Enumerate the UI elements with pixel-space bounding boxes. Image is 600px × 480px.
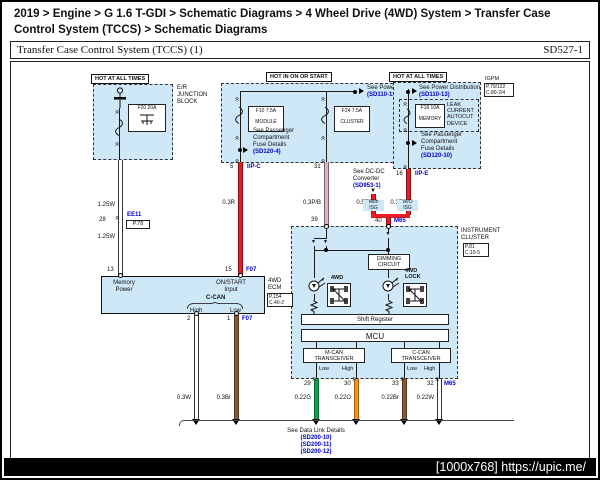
link-sd953-1[interactable]: (SD953-1) [353, 183, 385, 190]
link-sd120-10[interactable]: (SD120-10) [421, 153, 462, 160]
pin-2: 2 [187, 316, 190, 323]
see-passenger-fuse-details-4: See Passenger Compartment Fuse Details (… [253, 128, 294, 156]
drivetrain-4wd-icon [327, 283, 351, 307]
wire-label-03w: 0.3W [163, 395, 191, 402]
ecm-ccan-label: C-CAN [206, 295, 225, 302]
indicator-4wd-lock-label: 4WD LOCK [405, 268, 421, 280]
wire-orange-mcan-high [354, 379, 359, 419]
pin-15: 15 [225, 267, 232, 274]
diode-icon: ▼ [323, 240, 328, 245]
connector-link-ipc[interactable]: I/P-C [247, 164, 261, 171]
data-link-bus-line [179, 420, 514, 426]
wire-label-022br: 0.22Br [369, 395, 399, 402]
igpm-label: IGPM [485, 76, 499, 82]
mcan-high-label: High [342, 366, 353, 372]
pin-1: 1 [227, 316, 230, 323]
entry-circle [234, 311, 239, 316]
ccan-low-label: Low [407, 366, 417, 372]
ecm-name-label: 4WD ECM [268, 278, 281, 292]
relay-core-icon [137, 113, 157, 127]
see-data-link-details: See Data Link Details [251, 428, 381, 435]
see-reference-arrow [412, 88, 417, 94]
diagram-title-bar: Transfer Case Control System (TCCS) (1) … [10, 41, 590, 59]
wire-label-022w: 0.22W [405, 395, 434, 402]
connector-chevron-icon: « [350, 377, 358, 381]
wire-label-03br: 0.3Br [203, 395, 231, 402]
wire-white-ccan-high [437, 379, 442, 419]
fuse-box-f24: F24 7.5A CLUSTER [334, 106, 370, 132]
ecm-ref-box: P.154 C.40-2 [267, 293, 293, 307]
connector-chevron-icon: « [113, 142, 121, 146]
junction-dot [353, 90, 357, 94]
connector-chevron-icon: « [319, 136, 327, 140]
dimming-circuit-box: DIMMING CIRCUIT [368, 254, 410, 270]
resistor-icon [310, 300, 318, 314]
junction-dot [406, 141, 410, 145]
watermark-text: [1000x768] https://upic.me/ [436, 460, 586, 474]
connector-chevron-icon: « [113, 216, 121, 220]
diode-icon: ▼ [386, 232, 391, 237]
connector-chevron-icon: « [319, 159, 327, 163]
wire-brown-ccan-low-ecm [234, 315, 239, 419]
indicator-lamp-icon [307, 276, 327, 294]
wo-isg-tag: W/O ISG [397, 200, 418, 211]
schematic-diagram: HOT AT ALL TIMES E/R JUNCTION BLOCK « F2… [10, 61, 590, 461]
hot-label-right: HOT AT ALL TIMES [389, 72, 447, 82]
hot-label-mid: HOT IN ON OR START [266, 72, 332, 82]
pin-28: 28 [99, 217, 106, 224]
see-power-distribution-13: See Power Distribution [419, 85, 480, 92]
pin-30: 30 [344, 381, 351, 388]
connector-chevron-icon: « [398, 377, 406, 381]
fuse1-wire [240, 91, 241, 163]
connector-chevron-icon: « [433, 377, 441, 381]
ecm-memory-power-label: Memory Power [109, 280, 139, 294]
wire-label-022o: 0.22O [323, 395, 351, 402]
pin-33: 33 [392, 381, 399, 388]
wire-label-03r-left: 0.3R [209, 200, 235, 207]
shift-register-bar: Shift Register [301, 314, 449, 325]
connector-link-f07-top[interactable]: F07 [246, 267, 256, 274]
fuse-box-f18: F18 10A MEMORY [415, 104, 445, 128]
connector-link-m65-top[interactable]: M65 [394, 218, 406, 225]
mcu-bar: MCU [301, 329, 449, 342]
indicator-4wd-label: 4WD [331, 275, 343, 281]
drivetrain-4wd-lock-icon [403, 283, 427, 307]
link-sd200-12[interactable]: (SD200-12) [251, 449, 381, 456]
pin-32: 32 [427, 381, 434, 388]
cluster-wire [388, 238, 389, 254]
connector-chevron-icon: « [401, 102, 409, 106]
er-junction-block-label: E/R JUNCTION BLOCK [177, 85, 207, 106]
connector-chevron-icon: « [233, 159, 241, 163]
connector-chevron-icon: « [113, 110, 121, 114]
pin-29: 29 [304, 381, 311, 388]
schematic-viewer-page: { "colors":{"panel_fill":"#cfe8f7","link… [0, 0, 600, 480]
mcan-low-label: Low [319, 366, 329, 372]
entry-circle [324, 224, 329, 229]
wire-label-125w-lower: 1.25W [77, 234, 115, 241]
fuse-f20-label: F20 20A [129, 106, 165, 112]
wire-label-03pb: 0.3P/B [291, 200, 321, 207]
cluster-ref-box: P.81 C.10-5 [463, 243, 489, 257]
with-isg-tag: With ISG [363, 200, 384, 211]
wire-label-125w-upper: 1.25W [77, 202, 115, 209]
link-sd110-13[interactable]: (SD110-13) [419, 92, 450, 99]
see-reference-arrow [359, 88, 364, 94]
ccan-transceiver-box: C-CAN TRANSCEIVER [391, 348, 451, 363]
entry-circle [194, 311, 199, 316]
fuse-coil-icon [115, 118, 123, 136]
fuse-coil-icon [403, 108, 411, 124]
connector-link-m65-bottom[interactable]: M65 [444, 381, 456, 388]
pin-13: 13 [107, 267, 114, 274]
page-title: Transfer Case Control System (TCCS) (1) [17, 44, 203, 56]
fuse-box-f20: F20 20A [128, 104, 166, 132]
see-dcdc-converter: See DC-DC Converter (SD953-1) [353, 169, 385, 190]
entry-circle [118, 273, 123, 278]
connector-ref-p78: P.78 [126, 220, 150, 229]
wire-white-ccan-high-ecm [194, 315, 199, 419]
connector-chevron-icon: « [401, 128, 409, 132]
connector-link-f07-bottom[interactable]: F07 [242, 316, 252, 323]
fuse2-wire [326, 91, 327, 163]
pin-40: 40 [375, 218, 382, 225]
watermark-bar: [1000x768] https://upic.me/ [4, 458, 596, 476]
junction-dot [324, 248, 328, 252]
entry-circle [238, 273, 243, 278]
cluster-wire [314, 250, 315, 278]
ccan-high-label: High [424, 366, 435, 372]
instrument-cluster-label: INSTRUMENT CLUSTER [461, 228, 500, 242]
battery-terminal-icon [112, 87, 128, 109]
mcan-transceiver-box: M-CAN TRANSCEIVER [303, 348, 365, 363]
junction-dot [238, 148, 242, 152]
wire-pink-cluster [324, 162, 329, 226]
diagram-code: SD527-1 [543, 44, 583, 56]
see-reference-arrow [412, 140, 417, 146]
link-sd200-11[interactable]: (SD200-11) [251, 442, 381, 449]
wire-label-022g: 0.22G [283, 395, 311, 402]
hot-label-left: HOT AT ALL TIMES [91, 74, 149, 84]
entry-circle [386, 224, 391, 229]
wire-green-mcan-low [314, 379, 319, 419]
igpm-ref-box: P.79/122 C.80-2/4 [484, 83, 514, 97]
connector-link-ipe[interactable]: I/P-E [415, 171, 428, 178]
connector-chevron-icon: « [319, 97, 327, 101]
connector-chevron-icon: « [310, 377, 318, 381]
see-reference-arrow [243, 147, 248, 153]
connector-chevron-icon: « [233, 136, 241, 140]
ecm-onstart-label: ON/START Input [211, 280, 251, 294]
pin-39: 39 [311, 217, 318, 224]
pin-16: 16 [396, 171, 403, 178]
connector-chevron-icon: « [401, 165, 409, 169]
leak-current-autocut-label: LEAK CURRENT AUTOCUT DEVICE [447, 102, 474, 127]
bus-line [240, 91, 356, 92]
wire-red-onstart [238, 162, 243, 276]
diode-icon: ▼ [311, 240, 316, 245]
breadcrumb[interactable]: 2019 > Engine > G 1.6 T-GDI > Schematic … [2, 2, 598, 39]
fuse-coil-icon [321, 106, 329, 124]
connector-chevron-icon: « [233, 97, 241, 101]
pin-31: 31 [314, 164, 321, 171]
resistor-icon [385, 300, 393, 314]
link-sd120-4[interactable]: (SD120-4) [253, 149, 294, 156]
link-sd200-10[interactable]: (SD200-10) [251, 435, 381, 442]
indicator-lamp-icon [381, 276, 401, 294]
pin-5: 5 [230, 164, 233, 171]
see-passenger-fuse-details-10: See Passenger Compartment Fuse Details (… [421, 132, 462, 160]
fuse-coil-icon [235, 106, 243, 124]
connector-link-ee11[interactable]: EE11 [127, 212, 141, 219]
junction-dot [406, 90, 410, 94]
